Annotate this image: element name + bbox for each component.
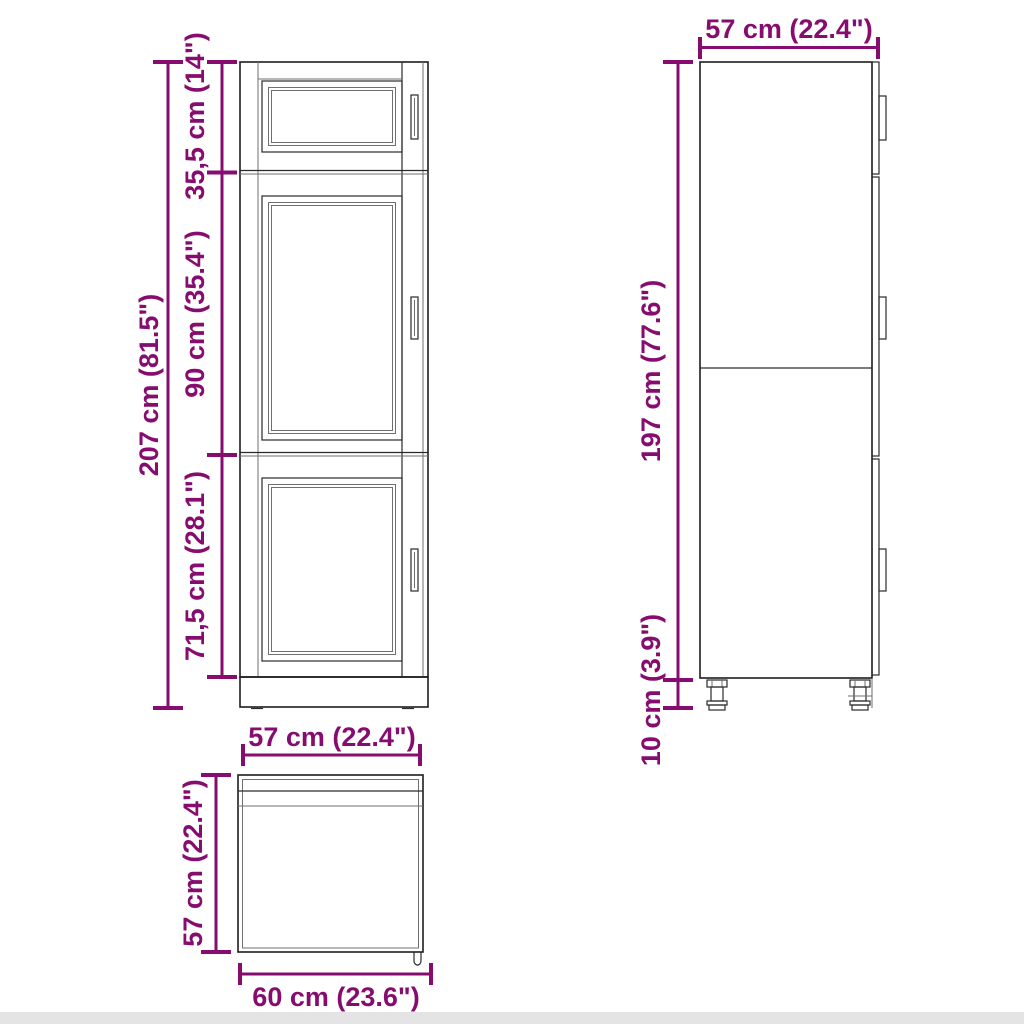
- door-frame: [262, 81, 402, 152]
- front-dim-total: 207 cm (81.5"): [134, 62, 183, 708]
- top-door-front: [262, 81, 402, 152]
- plan-dim-width-bottom-label: 60 cm (23.6"): [252, 982, 419, 1012]
- side-dim-width-label: 57 cm (22.4"): [705, 14, 872, 44]
- door-frame-inner: [269, 203, 396, 434]
- foot-bracket: [850, 680, 870, 687]
- door-panel: [272, 488, 393, 652]
- side-outline: [700, 62, 872, 678]
- front-dim-total-label: 207 cm (81.5"): [134, 294, 164, 476]
- plan-outline: [238, 775, 423, 952]
- handle: [879, 549, 886, 591]
- handle: [879, 96, 886, 140]
- door-frame-inner: [269, 485, 396, 655]
- door-frame: [262, 478, 402, 661]
- plan-dim-width-top: 57 cm (22.4"): [243, 722, 420, 766]
- drawing-svg: 207 cm (81.5") 35,5 cm (14") 90 cm (35.4…: [0, 0, 1024, 1024]
- plan-view: 57 cm (22.4") 57 cm (22.4") 60 cm (23.6"…: [178, 722, 431, 1012]
- plan-dim-width-top-label: 57 cm (22.4"): [248, 722, 415, 752]
- front-dim-top-label: 35,5 cm (14"): [180, 32, 210, 199]
- middle-door-front: [262, 196, 402, 440]
- foot-pad: [852, 705, 868, 710]
- plan-dim-depth-label: 57 cm (22.4"): [178, 779, 208, 946]
- side-handles: [879, 96, 886, 591]
- side-view: 57 cm (22.4") 197 cm (77.6") 10 cm (3.9"…: [636, 14, 886, 766]
- foot-bracket: [707, 680, 727, 687]
- side-body: [700, 62, 886, 710]
- front-plinth: [240, 677, 428, 709]
- footer-strip: [0, 1012, 1024, 1024]
- door-edge-strip: [872, 177, 879, 456]
- plinth: [240, 677, 428, 707]
- side-dim-legs-label: 10 cm (3.9"): [636, 614, 666, 766]
- door-panel: [272, 91, 393, 143]
- front-dim-low-label: 71,5 cm (28.1"): [180, 471, 210, 661]
- foot-pad: [709, 705, 725, 710]
- front-dim-sections: 35,5 cm (14") 90 cm (35.4") 71,5 cm (28.…: [180, 32, 237, 677]
- front-dim-mid-label: 90 cm (35.4"): [180, 230, 210, 397]
- side-dim-width: 57 cm (22.4"): [700, 14, 878, 59]
- plan-body: [238, 775, 423, 965]
- side-dim-legs: 10 cm (3.9"): [636, 614, 693, 766]
- handle: [879, 297, 886, 339]
- foot-stem: [711, 687, 723, 701]
- door-frame: [262, 196, 402, 440]
- foot-stem: [854, 687, 866, 701]
- side-feet: [707, 678, 872, 710]
- plan-inner-wall: [243, 780, 419, 949]
- front-view: 207 cm (81.5") 35,5 cm (14") 90 cm (35.4…: [134, 32, 428, 708]
- door-edge-strip: [872, 459, 879, 675]
- front-handles: [411, 95, 418, 591]
- door-edge-strip: [872, 62, 879, 174]
- side-dim-height-label: 197 cm (77.6"): [636, 280, 666, 462]
- side-dim-height: 197 cm (77.6"): [636, 62, 693, 680]
- door-frame-inner: [269, 88, 396, 146]
- bottom-door-front: [262, 478, 402, 661]
- rear-foot: [848, 680, 872, 710]
- hinge-hook: [414, 952, 421, 965]
- plan-dim-width-bottom: 60 cm (23.6"): [240, 963, 431, 1012]
- door-panel: [272, 206, 393, 431]
- front-foot: [707, 680, 727, 710]
- dimension-drawing: 207 cm (81.5") 35,5 cm (14") 90 cm (35.4…: [0, 0, 1024, 1024]
- plan-dim-depth: 57 cm (22.4"): [178, 775, 231, 952]
- front-cabinet: [240, 62, 428, 709]
